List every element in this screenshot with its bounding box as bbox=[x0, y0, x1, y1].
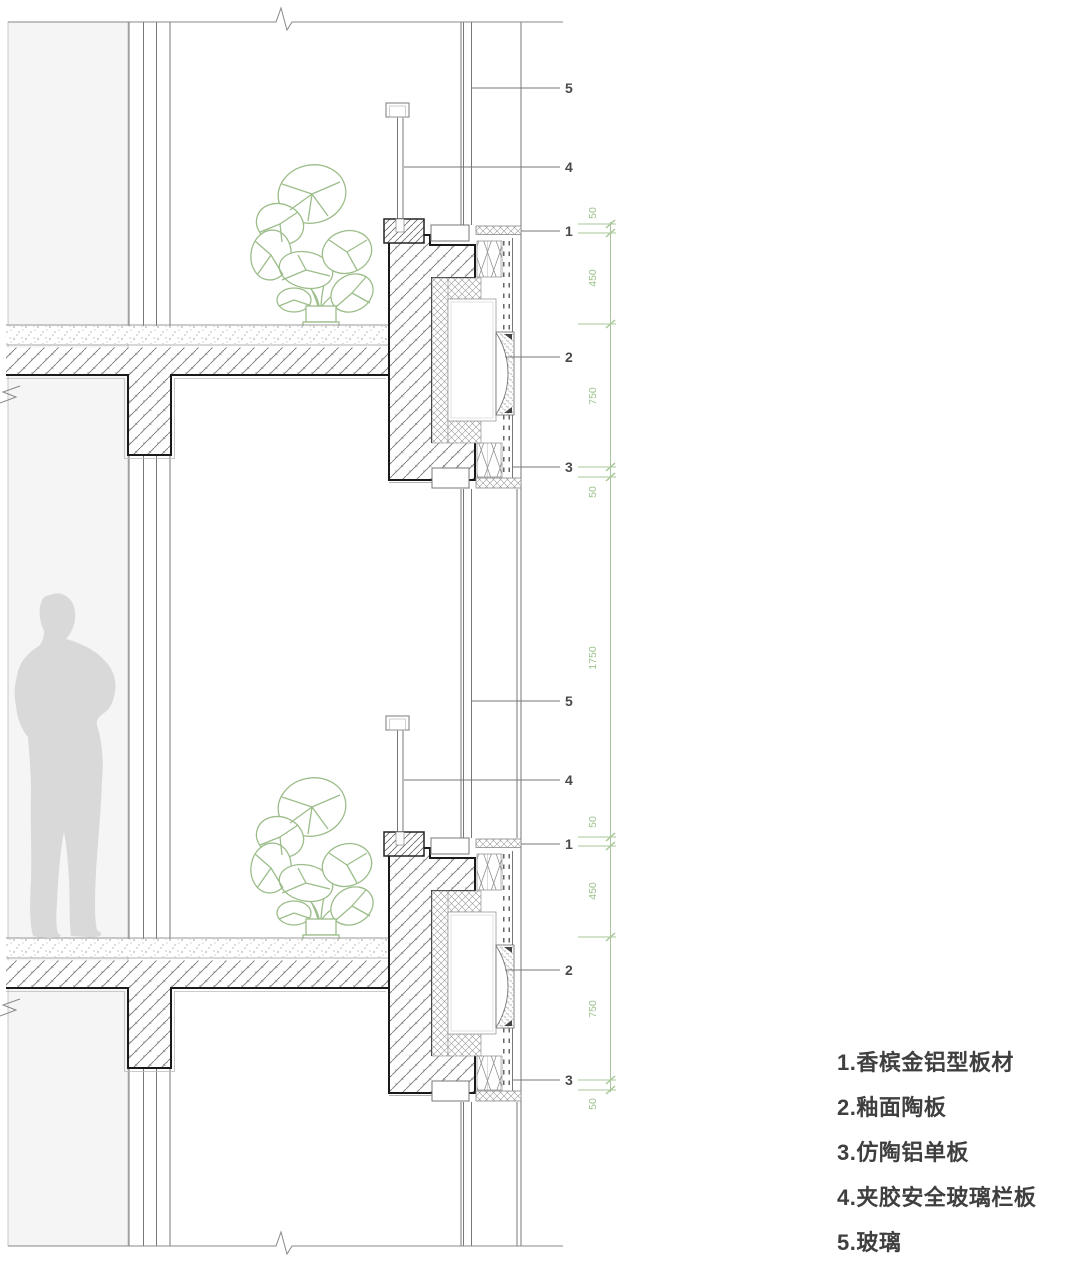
callouts-upper: 5 4 1 2 3 bbox=[565, 80, 573, 475]
dim-label-50-d: 50 bbox=[587, 1098, 599, 1110]
legend-item-1: 1.香槟金铝型板材 bbox=[837, 1040, 1036, 1085]
dim-label-50-a: 50 bbox=[587, 207, 599, 219]
dimension-labels: 50 450 750 50 1750 50 450 750 50 bbox=[587, 207, 599, 1110]
dim-label-450-b: 450 bbox=[587, 882, 599, 900]
callout-5-lower: 5 bbox=[565, 693, 573, 709]
legend-item-2: 2.釉面陶板 bbox=[837, 1085, 1036, 1130]
callout-3-lower: 3 bbox=[565, 1072, 573, 1088]
legend-item-5: 5.玻璃 bbox=[837, 1220, 1036, 1261]
dim-label-1750: 1750 bbox=[587, 646, 599, 670]
dimension-chain: 50 450 750 50 1750 50 450 750 50 bbox=[578, 207, 616, 1110]
callout-4-upper: 4 bbox=[565, 159, 573, 175]
callout-5-upper: 5 bbox=[565, 80, 573, 96]
dim-label-50-b: 50 bbox=[587, 486, 599, 498]
material-legend: 1.香槟金铝型板材 2.釉面陶板 3.仿陶铝单板 4.夹胶安全玻璃栏板 5.玻璃 bbox=[837, 1040, 1036, 1261]
dim-label-50-c: 50 bbox=[587, 816, 599, 828]
callout-1-upper: 1 bbox=[565, 223, 573, 239]
legend-item-3: 3.仿陶铝单板 bbox=[837, 1130, 1036, 1175]
callouts-lower: 5 4 1 2 3 bbox=[565, 693, 573, 1088]
callout-4-lower: 4 bbox=[565, 772, 573, 788]
legend-item-4: 4.夹胶安全玻璃栏板 bbox=[837, 1175, 1036, 1220]
callout-2-upper: 2 bbox=[565, 349, 573, 365]
architectural-detail-sheet: 50 450 750 50 1750 50 450 750 50 5 4 1 2… bbox=[0, 0, 1080, 1261]
facade-outer-line bbox=[517, 22, 521, 1246]
dim-label-750-a: 750 bbox=[587, 387, 599, 405]
callout-1-lower: 1 bbox=[565, 836, 573, 852]
callout-3-upper: 3 bbox=[565, 459, 573, 475]
dim-label-750-b: 750 bbox=[587, 1000, 599, 1018]
dim-label-450-a: 450 bbox=[587, 269, 599, 287]
callout-2-lower: 2 bbox=[565, 962, 573, 978]
